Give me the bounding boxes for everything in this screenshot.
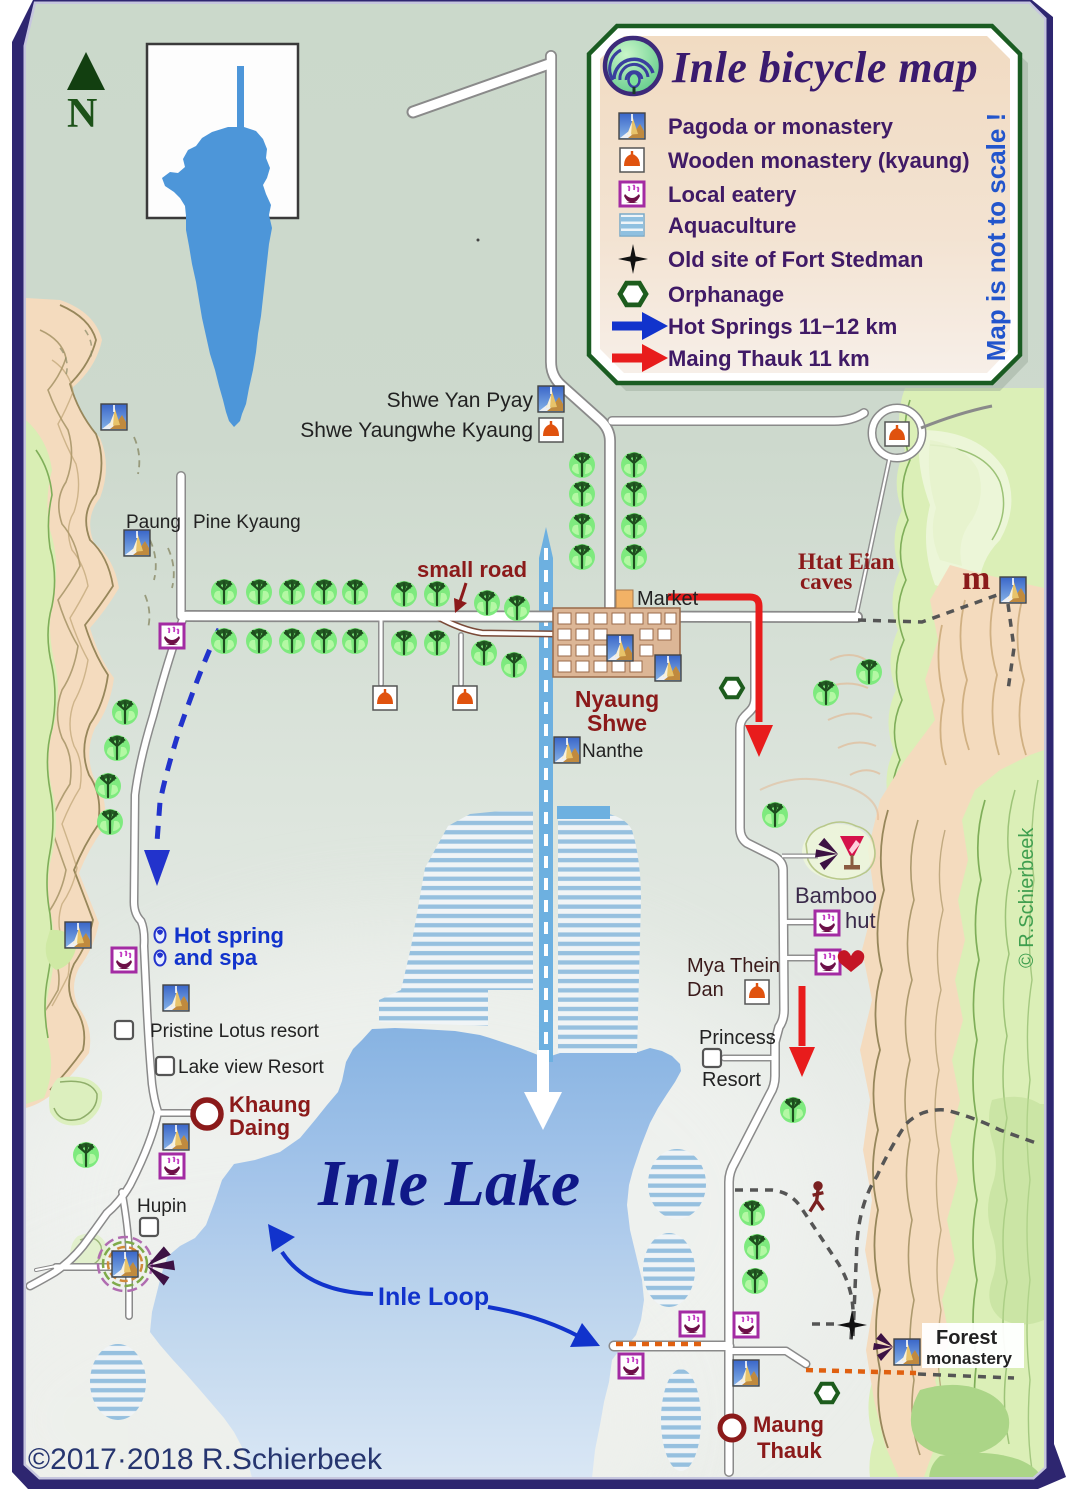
svg-text:hut: hut bbox=[845, 908, 876, 933]
svg-text:caves: caves bbox=[800, 569, 852, 594]
svg-text:m: m bbox=[962, 560, 990, 597]
svg-text:Aquaculture: Aquaculture bbox=[668, 213, 796, 238]
svg-text:Nyaung: Nyaung bbox=[575, 686, 659, 712]
svg-text:monastery: monastery bbox=[926, 1349, 1013, 1368]
svg-text:Old site of Fort Stedman: Old site of Fort Stedman bbox=[668, 247, 923, 272]
svg-text:Thauk: Thauk bbox=[757, 1438, 823, 1463]
svg-text:Hupin: Hupin bbox=[137, 1196, 187, 1217]
svg-text:small road: small road bbox=[417, 557, 527, 582]
svg-text:Pine Kyaung: Pine Kyaung bbox=[193, 512, 301, 533]
svg-text:Shwe Yan Pyay: Shwe Yan Pyay bbox=[387, 389, 534, 412]
svg-text:Shwe Yaungwhe Kyaung: Shwe Yaungwhe Kyaung bbox=[300, 419, 533, 442]
svg-text:Local eatery: Local eatery bbox=[668, 182, 797, 207]
svg-text:Nanthe: Nanthe bbox=[582, 741, 643, 762]
svg-text:Inle Lake: Inle Lake bbox=[317, 1147, 580, 1220]
svg-text:Princess: Princess bbox=[699, 1027, 776, 1049]
svg-text:Dan: Dan bbox=[687, 979, 724, 1001]
svg-text:Inle Loop: Inle Loop bbox=[378, 1283, 489, 1311]
svg-text:and spa: and spa bbox=[174, 945, 258, 970]
svg-text:Pagoda or monastery: Pagoda or monastery bbox=[668, 114, 894, 139]
svg-text:Inle bicycle map: Inle bicycle map bbox=[671, 43, 978, 92]
svg-text:Daing: Daing bbox=[229, 1115, 290, 1140]
svg-text:Resort: Resort bbox=[702, 1069, 761, 1091]
svg-text:© R.Schierbeek: © R.Schierbeek bbox=[1016, 827, 1038, 968]
svg-text:Pristine Lotus resort: Pristine Lotus resort bbox=[150, 1021, 320, 1042]
svg-text:Paung: Paung bbox=[126, 512, 181, 533]
svg-text:Hot Springs 11−12 km: Hot Springs 11−12 km bbox=[668, 314, 897, 339]
svg-text:Map is not to scale !: Map is not to scale ! bbox=[981, 113, 1011, 362]
svg-text:Orphanage: Orphanage bbox=[668, 282, 784, 307]
svg-text:N: N bbox=[67, 91, 97, 137]
svg-text:Shwe: Shwe bbox=[587, 710, 647, 736]
svg-text:Market: Market bbox=[637, 588, 699, 610]
svg-text:Mya Thein: Mya Thein bbox=[687, 955, 780, 977]
svg-text:Maung: Maung bbox=[753, 1412, 824, 1437]
svg-text:Maing Thauk 11 km: Maing Thauk 11 km bbox=[668, 346, 870, 371]
svg-text:Bamboo: Bamboo bbox=[795, 883, 877, 908]
svg-text:Khaung: Khaung bbox=[229, 1092, 311, 1117]
svg-text:©2017·2018 R.Schierbeek: ©2017·2018 R.Schierbeek bbox=[28, 1443, 383, 1476]
svg-text:Wooden monastery (kyaung): Wooden monastery (kyaung) bbox=[668, 148, 970, 173]
svg-text:Forest: Forest bbox=[936, 1327, 997, 1349]
svg-text:Lake view Resort: Lake view Resort bbox=[178, 1057, 324, 1078]
